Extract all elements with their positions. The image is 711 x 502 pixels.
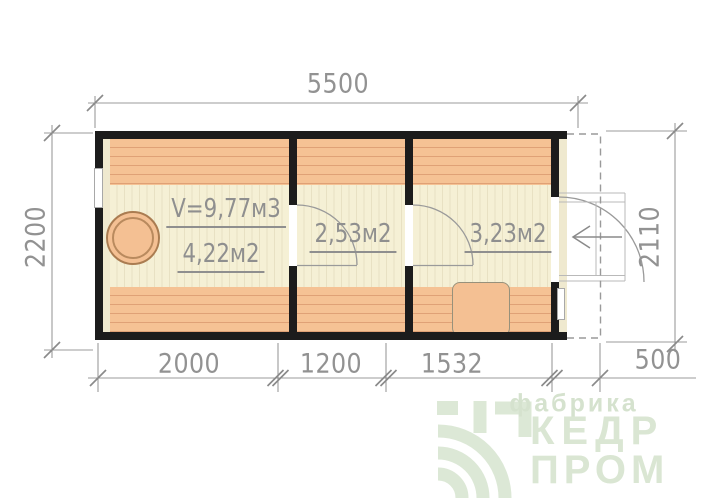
dim-top-label: 5500 — [307, 71, 369, 98]
dim-bottom-label-500: 500 — [635, 347, 682, 374]
room2-area-label: 2,53м2 — [310, 221, 397, 253]
room3-area-label: 3,23м2 — [465, 221, 552, 253]
room1-volume-label: V=9,77м3 — [166, 196, 285, 228]
dim-left-label: 2200 — [23, 206, 50, 268]
dim-bottom-label-2000: 2000 — [158, 351, 220, 378]
porch-outline-dashed — [567, 134, 601, 338]
dim-bottom-label-1532: 1532 — [421, 351, 483, 378]
floor-plan-canvas: фабрика КЕДР ПРОМ — [0, 0, 711, 502]
window-right — [558, 289, 565, 320]
entrance-arrow-icon — [573, 226, 622, 248]
window-left — [95, 169, 103, 208]
dim-right-label: 2110 — [637, 206, 664, 268]
dim-bottom-label-1200: 1200 — [300, 351, 362, 378]
room1-area-label: 4,22м2 — [178, 241, 265, 273]
